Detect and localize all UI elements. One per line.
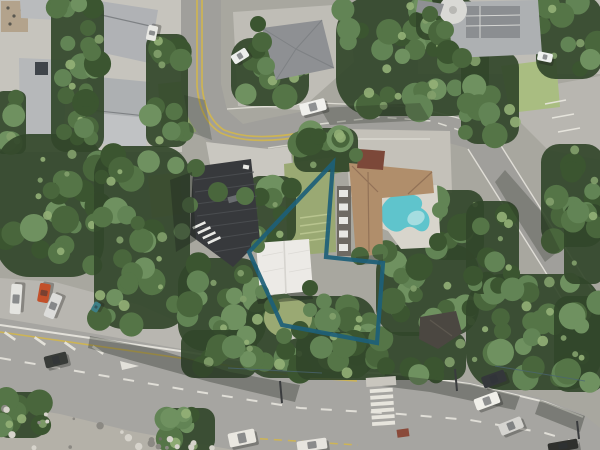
- tree-highlight: [252, 314, 263, 325]
- tree-highlight: [522, 301, 532, 311]
- tree-highlight: [572, 260, 577, 265]
- tree-overhang-canopy: [74, 118, 94, 138]
- tree-highlight: [548, 5, 556, 13]
- tree-highlight: [157, 232, 167, 242]
- tree-canopy: [522, 356, 545, 379]
- tree-canopy: [310, 336, 333, 359]
- tree-highlight: [498, 236, 503, 241]
- tree-highlight: [57, 248, 65, 256]
- tree-canopy: [137, 150, 160, 173]
- rock: [165, 446, 169, 450]
- tree-canopy: [405, 253, 432, 280]
- tree-highlight: [570, 145, 579, 154]
- tree-highlight: [410, 285, 416, 291]
- tree-canopy: [544, 185, 569, 210]
- rock: [149, 437, 155, 443]
- tree-canopy: [281, 178, 302, 199]
- tree-highlight: [276, 231, 283, 238]
- tree-highlight: [382, 64, 391, 73]
- tree-canopy: [26, 390, 53, 417]
- tree-highlight: [69, 83, 76, 90]
- rock: [73, 418, 76, 421]
- tree-highlight: [273, 202, 278, 207]
- tree-highlight: [472, 357, 477, 362]
- tree-canopy: [395, 49, 410, 64]
- tree-highlight: [158, 61, 165, 68]
- tree-canopy: [491, 308, 509, 326]
- tree-canopy: [51, 206, 79, 234]
- tree-overhang-canopy: [303, 303, 317, 317]
- tree-highlight: [274, 359, 285, 370]
- tree-canopy: [555, 358, 581, 384]
- tree-highlight: [240, 296, 247, 303]
- tree-highlight: [427, 91, 436, 100]
- tree-highlight: [510, 117, 521, 128]
- tree-canopy: [119, 312, 143, 336]
- rock: [159, 437, 162, 440]
- tree-highlight: [395, 93, 402, 100]
- tree-highlight: [95, 290, 105, 300]
- tree-highlight: [482, 326, 488, 332]
- rock: [44, 412, 48, 416]
- skylight: [35, 62, 48, 75]
- red-surface-patch: [397, 428, 410, 438]
- tree-canopy: [54, 69, 72, 87]
- tree-canopy: [310, 128, 327, 145]
- tree-highlight: [561, 335, 567, 341]
- tree-canopy: [574, 318, 589, 333]
- tree-overhang-canopy: [349, 148, 363, 162]
- tree-highlight: [579, 355, 585, 361]
- tree-highlight: [342, 367, 353, 378]
- tree-highlight: [106, 177, 115, 186]
- tree-canopy: [463, 266, 483, 286]
- rock: [8, 431, 15, 438]
- tree-highlight: [429, 80, 438, 89]
- tree-overhang-canopy: [250, 16, 266, 32]
- roof-panels: [466, 6, 520, 38]
- tree-highlight: [210, 280, 216, 286]
- rock: [191, 440, 197, 446]
- tree-canopy: [162, 122, 181, 141]
- tree-canopy: [316, 294, 332, 310]
- tree-canopy: [187, 270, 209, 292]
- tree-canopy: [272, 84, 297, 109]
- tree-canopy: [458, 125, 473, 140]
- tree-overhang-canopy: [252, 32, 272, 52]
- aerial-photo: [0, 0, 600, 450]
- rock: [125, 434, 132, 441]
- tree-highlight: [456, 339, 466, 349]
- tree-canopy: [472, 218, 490, 236]
- tree-canopy: [8, 90, 24, 106]
- tree-highlight: [119, 300, 130, 311]
- tree-highlight: [576, 39, 584, 47]
- tree-canopy: [478, 102, 500, 124]
- tree-highlight: [444, 282, 452, 290]
- tree-highlight: [356, 316, 363, 323]
- tree-canopy: [120, 272, 138, 290]
- tree-highlight: [181, 409, 191, 419]
- tree-canopy: [129, 228, 153, 252]
- tree-canopy: [177, 291, 203, 317]
- tree-highlight: [43, 211, 52, 220]
- tree-overhang-canopy: [208, 182, 228, 202]
- tree-highlight: [591, 177, 599, 185]
- tree-highlight: [244, 340, 249, 345]
- tree-highlight: [334, 130, 344, 140]
- tree-canopy: [235, 83, 256, 104]
- tree-overhang-canopy: [436, 21, 454, 39]
- tree-highlight: [38, 178, 43, 183]
- tree-highlight: [64, 171, 69, 176]
- aerial-map-view[interactable]: [0, 0, 600, 450]
- tree-overhang-canopy: [80, 20, 96, 36]
- tree-highlight: [6, 421, 14, 429]
- tree-highlight: [117, 169, 122, 174]
- tree-canopy: [56, 171, 83, 198]
- rock: [96, 422, 103, 429]
- tree-overhang-canopy: [432, 202, 448, 218]
- tree-canopy: [561, 162, 582, 183]
- tree-canopy: [92, 207, 113, 228]
- tree-highlight: [589, 212, 598, 221]
- tree-highlight: [237, 270, 244, 277]
- rock: [45, 420, 49, 424]
- rock: [167, 436, 173, 442]
- tree-overhang-canopy: [77, 89, 95, 107]
- tree-canopy: [579, 372, 600, 393]
- tree-overhang-canopy: [56, 124, 72, 140]
- tree-canopy: [457, 93, 478, 114]
- tree-highlight: [398, 32, 406, 40]
- tree-overhang-canopy: [257, 57, 275, 75]
- tree-canopy: [377, 357, 395, 375]
- tree-highlight: [538, 336, 549, 347]
- tree-highlight: [17, 414, 26, 423]
- tree-highlight: [67, 150, 76, 159]
- car-windshield: [307, 441, 317, 449]
- tree-canopy: [314, 307, 340, 333]
- tree-highlight: [36, 193, 42, 199]
- tree-canopy: [139, 104, 162, 127]
- tree-canopy: [447, 80, 464, 97]
- tree-canopy: [379, 288, 405, 314]
- tree-canopy: [484, 251, 505, 272]
- tree-highlight: [155, 136, 163, 144]
- rock: [3, 407, 9, 413]
- tree-highlight: [445, 357, 455, 367]
- tree-canopy: [567, 201, 589, 223]
- tree-highlight: [310, 162, 317, 169]
- tree-highlight: [544, 277, 555, 288]
- tree-canopy: [222, 335, 245, 358]
- tree-highlight: [40, 157, 45, 162]
- rock: [175, 444, 180, 449]
- rock: [68, 445, 72, 449]
- tree-highlight: [546, 198, 554, 206]
- tree-highlight: [156, 256, 162, 262]
- tree-highlight: [406, 2, 414, 10]
- tree-highlight: [329, 313, 336, 320]
- tree-highlight: [546, 308, 554, 316]
- car-windshield: [40, 290, 48, 297]
- tree-overhang-canopy: [302, 280, 318, 296]
- tree-overhang-canopy: [429, 233, 447, 251]
- tree-canopy: [170, 49, 192, 71]
- tree-highlight: [158, 284, 163, 289]
- rock: [156, 444, 162, 450]
- tree-canopy: [561, 37, 577, 53]
- rock: [120, 430, 124, 434]
- tree-canopy: [43, 182, 60, 199]
- car-windshield: [12, 294, 20, 303]
- tree-canopy: [31, 240, 50, 259]
- tree-highlight: [497, 212, 507, 222]
- rock: [135, 443, 142, 450]
- tree-highlight: [65, 60, 75, 70]
- tree-highlight: [506, 264, 512, 270]
- tree-highlight: [504, 104, 515, 115]
- tree-canopy: [482, 123, 508, 149]
- tree-overhang-canopy: [83, 43, 101, 61]
- tree-canopy: [60, 36, 75, 51]
- tree-canopy: [226, 288, 243, 305]
- tree-overhang-canopy: [276, 328, 292, 344]
- tree-canopy: [167, 157, 184, 174]
- tree-canopy: [376, 19, 402, 45]
- tree-canopy: [487, 339, 514, 366]
- tree-highlight: [95, 35, 104, 44]
- tree-overhang-canopy: [422, 6, 438, 22]
- tree-canopy: [20, 214, 48, 242]
- tree-highlight: [364, 88, 374, 98]
- tree-highlight: [116, 236, 123, 243]
- tree-highlight: [572, 351, 578, 357]
- tree-canopy: [166, 103, 183, 120]
- tree-canopy: [337, 18, 360, 41]
- tree-overhang-canopy: [452, 48, 472, 68]
- rock: [37, 421, 40, 424]
- tree-highlight: [153, 50, 161, 58]
- tree-canopy: [2, 104, 25, 127]
- tree-highlight: [247, 346, 253, 352]
- car: [9, 282, 25, 315]
- tree-canopy: [131, 216, 145, 230]
- tree-canopy: [501, 278, 525, 302]
- tree-overhang-canopy: [236, 187, 254, 205]
